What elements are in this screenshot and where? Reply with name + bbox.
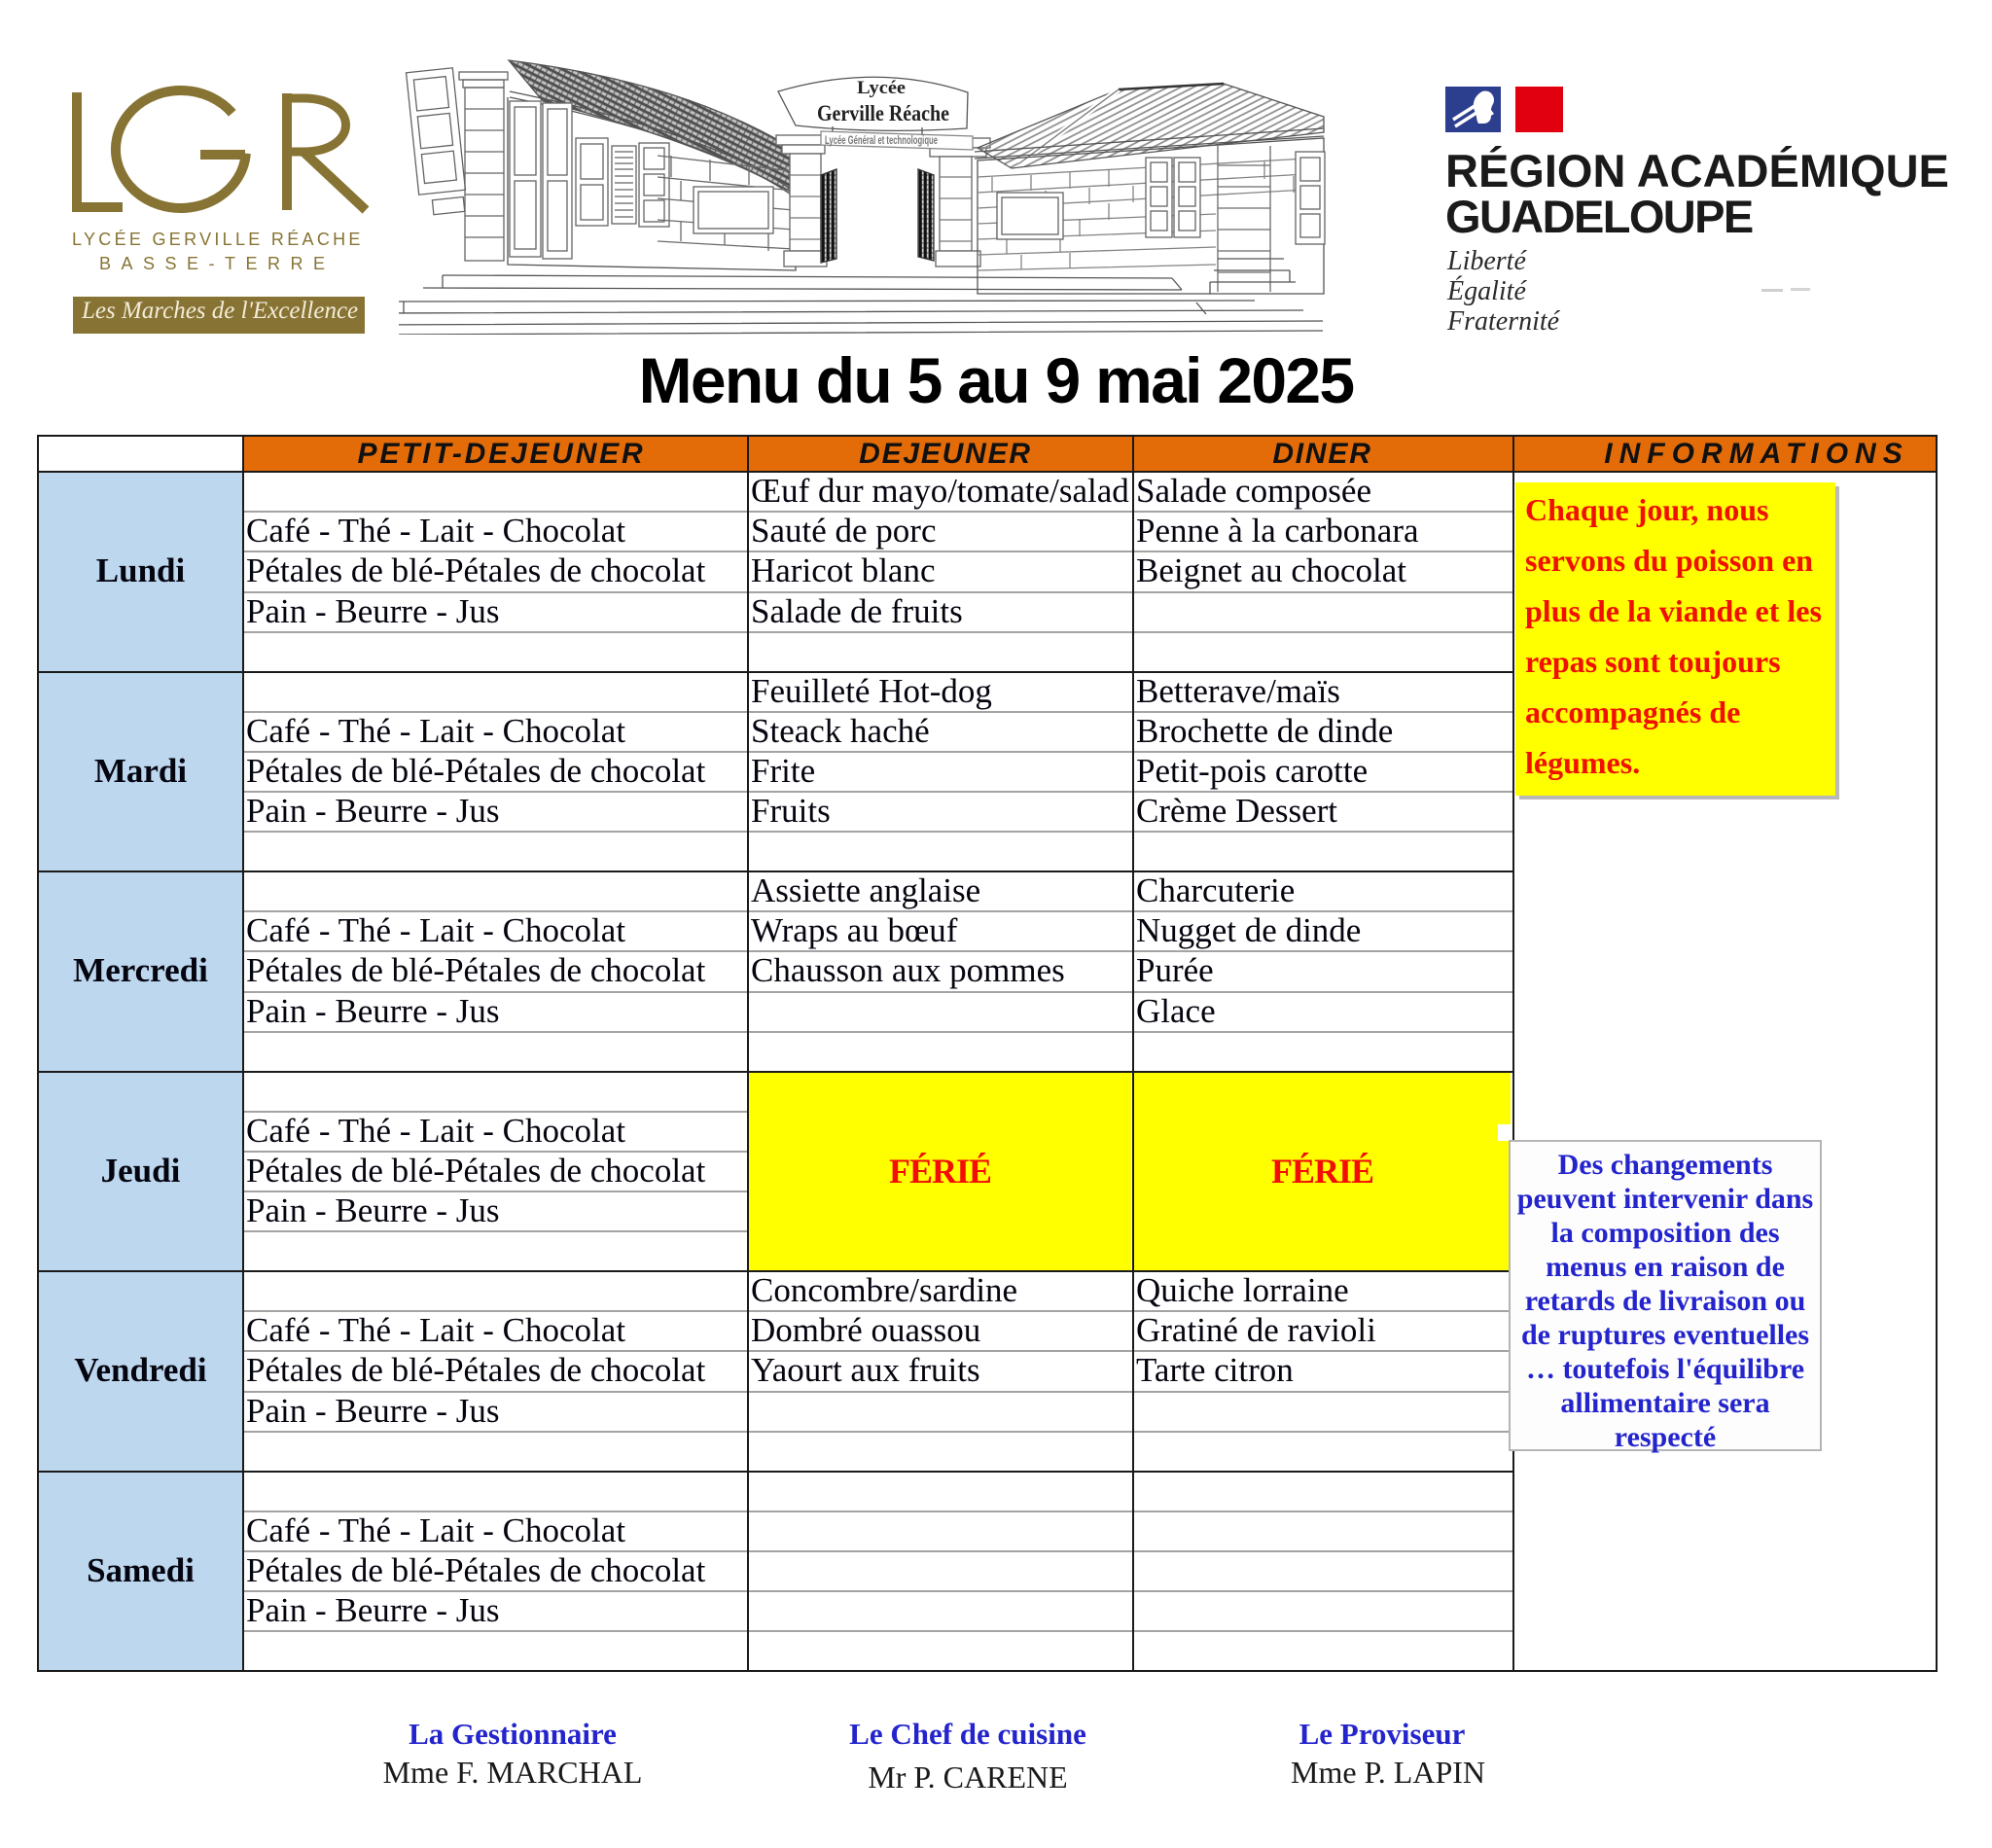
svg-text:Gerville Réache: Gerville Réache [817, 101, 949, 125]
svg-text:Lycée Général et technologique: Lycée Général et technologique [825, 133, 938, 147]
svg-text:Lycée: Lycée [857, 78, 906, 98]
